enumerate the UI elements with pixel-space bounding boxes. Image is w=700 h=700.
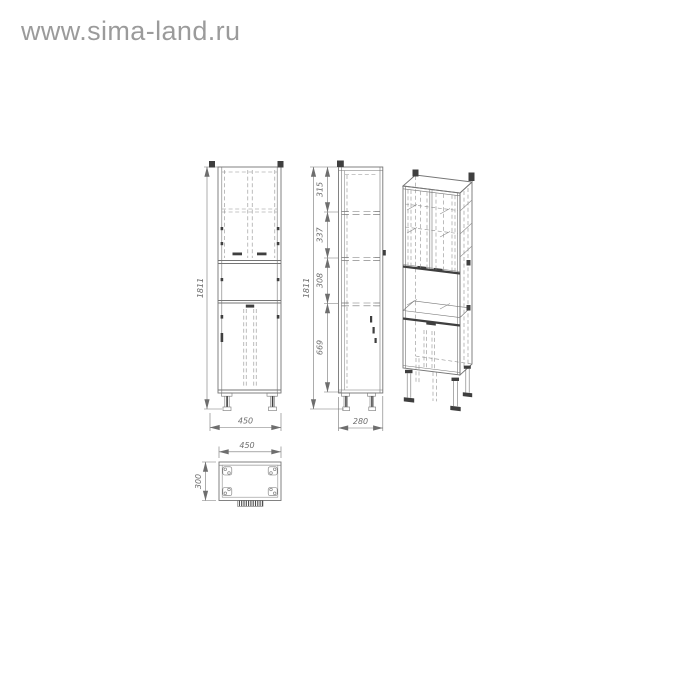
technical-drawing: 1811 [0, 0, 700, 700]
front-width-label: 450 [238, 417, 253, 426]
side-seg-3-label: 308 [316, 273, 325, 288]
side-view: 1811 315 337 308 669 [302, 161, 386, 432]
side-left-foot [342, 393, 350, 411]
side-height-label: 1811 [302, 278, 311, 298]
front-hinge-pins [221, 227, 280, 342]
isometric-view [403, 166, 475, 411]
side-depth-dimension: 280 [339, 396, 383, 431]
side-seg-bottom-label: 669 [316, 340, 325, 355]
side-cabinet [337, 161, 386, 411]
iso-feet [404, 358, 472, 411]
front-view: 1811 [196, 161, 284, 431]
front-width-dimension: 450 [210, 413, 281, 431]
side-depth-label: 280 [353, 417, 368, 426]
side-right-foot [368, 393, 376, 411]
plan-width-dimension: 450 [219, 441, 281, 458]
product-drawing-image: www.sima-land.ru 1811 [0, 0, 700, 700]
plan-width-label: 450 [239, 441, 254, 450]
side-seg-2-label: 337 [316, 226, 325, 242]
side-segment-dimensions: 315 337 308 669 [316, 167, 342, 392]
top-view: 450 300 [194, 441, 281, 506]
front-left-foot [222, 393, 233, 411]
plan-foot-plates [223, 467, 277, 496]
front-right-foot [267, 393, 278, 411]
plan-wall-rail [238, 501, 264, 507]
front-cabinet [209, 161, 284, 411]
plan-depth-label: 300 [194, 474, 203, 489]
front-height-label: 1811 [196, 278, 205, 298]
side-seg-top-label: 315 [316, 182, 325, 197]
plan-body [219, 462, 281, 506]
plan-depth-dimension: 300 [194, 462, 216, 501]
